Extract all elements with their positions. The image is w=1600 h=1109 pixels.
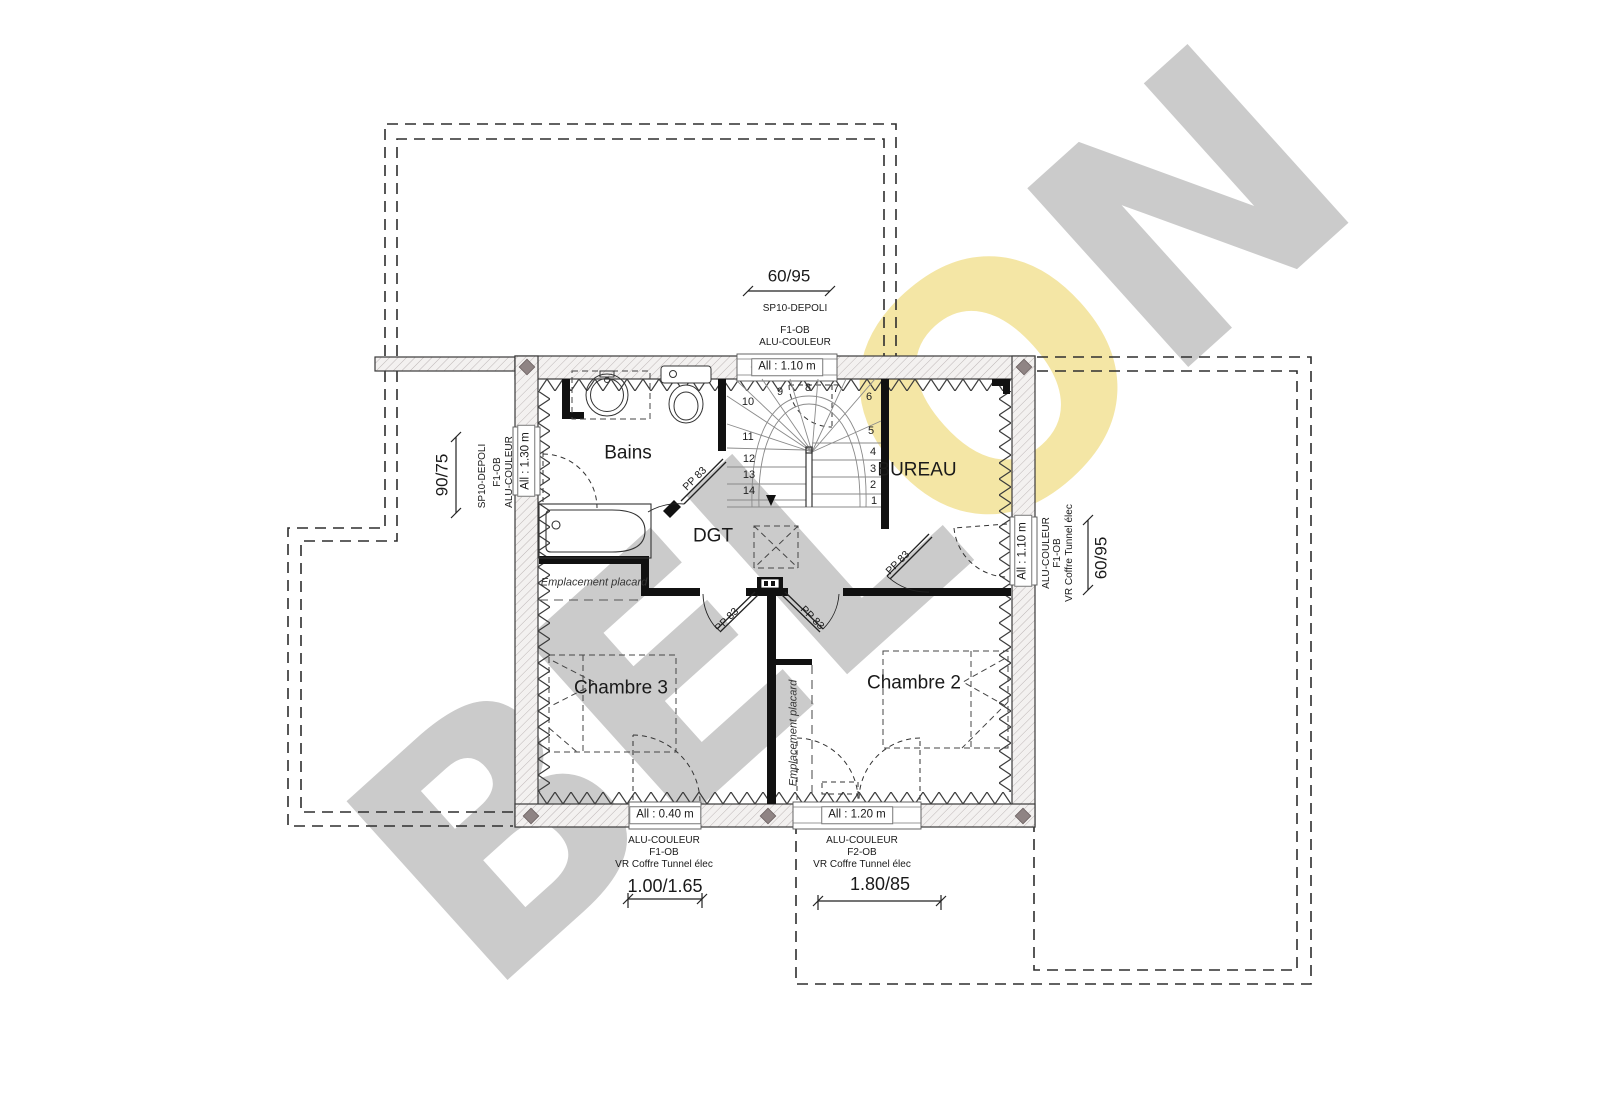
closet-label-chambre2: Emplacement placard <box>789 680 800 786</box>
left-window-dimension: 90/75 <box>434 454 451 497</box>
right-window-shutter: VR Coffre Tunnel élec <box>1065 504 1075 602</box>
bed-chambre3 <box>549 655 676 752</box>
bed-chambre2 <box>883 651 1008 748</box>
top-window-dimension: 60/95 <box>768 268 811 285</box>
bottom-left-window-shutter: VR Coffre Tunnel élec <box>615 860 713 870</box>
roof-outline-dashed <box>288 124 1311 984</box>
room-label-dgt: DGT <box>693 527 733 546</box>
top-window-glazing: SP10-DEPOLI <box>763 304 827 314</box>
stair-step-number: 14 <box>743 485 755 497</box>
bottom-left-window-frame: F1-OB <box>649 848 678 858</box>
left-window-sill-height: All : 1.30 m <box>517 425 535 497</box>
stair-step-number: 9 <box>777 386 783 398</box>
toilet <box>661 366 711 423</box>
stair-step-number: 10 <box>742 396 754 408</box>
bottom-right-window-dimension: 1.80/85 <box>850 875 910 893</box>
left-window-material: ALU-COULEUR <box>505 436 515 508</box>
stair-step-number: 1 <box>871 495 877 507</box>
right-window-material: ALU-COULEUR <box>1042 517 1052 589</box>
stair-step-number: 4 <box>870 446 876 458</box>
bathtub <box>539 504 651 558</box>
stair-step-number: 7 <box>833 383 839 395</box>
top-window-material: ALU-COULEUR <box>759 338 831 348</box>
floor-plan-sheet: BELON <box>0 0 1600 1109</box>
right-window-sill-height: All : 1.10 m <box>1014 515 1032 587</box>
bottom-left-window-dimension: 1.00/1.65 <box>627 877 702 895</box>
stair-step-number: 2 <box>870 479 876 491</box>
top-window-sill-height: All : 1.10 m <box>751 358 823 376</box>
room-label-chambre3: Chambre 3 <box>574 679 668 698</box>
bottom-left-window-sill-height: All : 0.40 m <box>629 806 701 824</box>
bottom-right-window-sill-height: All : 1.20 m <box>821 806 893 824</box>
room-label-bureau: BUREAU <box>877 461 956 480</box>
bottom-right-window-shutter: VR Coffre Tunnel élec <box>813 860 911 870</box>
ceiling-hatch <box>754 526 798 568</box>
closet-label-bains: Emplacement placard <box>541 578 647 589</box>
bottom-left-window-material: ALU-COULEUR <box>628 836 700 846</box>
post-marker <box>757 577 783 590</box>
floor-plan-linework <box>0 0 1600 1109</box>
stair-down-arrow <box>766 495 776 506</box>
stair-step-number: 8 <box>805 382 811 394</box>
stair-step-number: 6 <box>866 391 872 403</box>
stair-step-number: 12 <box>743 453 755 465</box>
bottom-right-window-material: ALU-COULEUR <box>826 836 898 846</box>
stair-step-number: 11 <box>742 431 753 443</box>
stair-step-number: 13 <box>743 469 755 481</box>
right-window-frame: F1-OB <box>1053 538 1063 567</box>
top-window-frame: F1-OB <box>780 326 809 336</box>
stair-step-number: 5 <box>868 425 874 437</box>
right-window-dimension: 60/95 <box>1093 537 1110 580</box>
room-label-bains: Bains <box>604 444 652 463</box>
left-window-glazing: SP10-DEPOLI <box>478 444 488 508</box>
left-window-frame: F1-OB <box>493 457 503 486</box>
stair-step-number: 3 <box>870 463 876 475</box>
bottom-right-window-frame: F2-OB <box>847 848 876 858</box>
room-label-chambre2: Chambre 2 <box>867 674 961 693</box>
